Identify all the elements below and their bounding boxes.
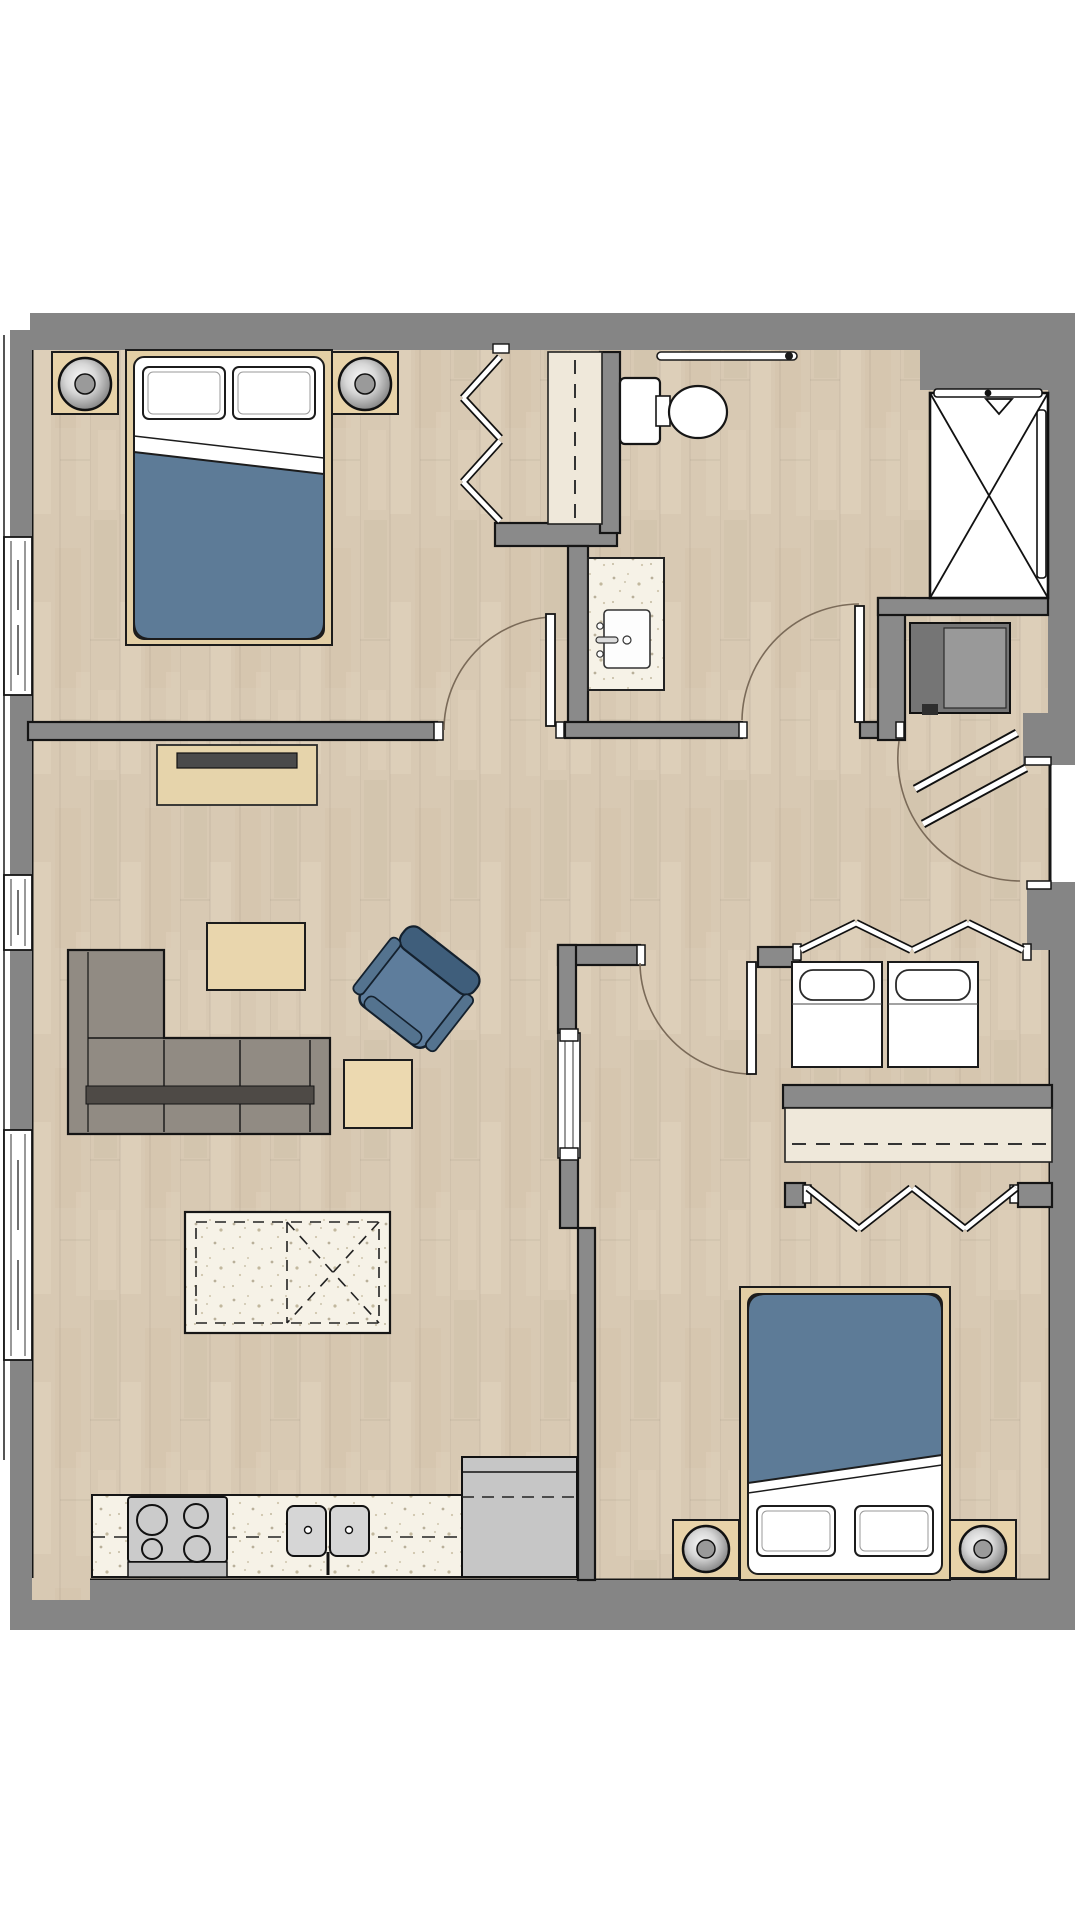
dryer-icon <box>888 962 978 1067</box>
faucet-handle <box>597 623 603 629</box>
wall-right-entry-block-bottom <box>1027 888 1052 950</box>
wall-bottom <box>90 1580 1075 1630</box>
wall-bedroom2-west-mid <box>560 1158 578 1228</box>
shower-glass-door <box>1037 410 1046 578</box>
wall-closet2-stub-left <box>785 1183 805 1207</box>
bed-duvet <box>748 1294 942 1483</box>
towel-bar-icon <box>657 352 797 360</box>
closet-shelf <box>785 1108 1052 1162</box>
table-lamp-center <box>75 374 95 394</box>
water-heater-panel <box>944 628 1006 708</box>
refrigerator-icon <box>462 1457 577 1577</box>
range-icon <box>128 1497 227 1577</box>
wall-right-lower <box>1050 882 1075 1630</box>
coffee-table <box>207 923 305 990</box>
floor-plan-canvas <box>0 0 1081 1920</box>
floor-patch-kitchen-left <box>32 1578 90 1602</box>
bed-duvet <box>134 452 324 639</box>
wall-left <box>10 330 32 1607</box>
wall-bottom-left-step <box>10 1600 92 1630</box>
wall-bedroom2-west-low <box>578 1228 595 1580</box>
kitchen-island <box>185 1212 390 1333</box>
wall-niche-west <box>878 598 905 740</box>
pocket-door-jamb <box>560 1148 578 1160</box>
wall-bath-south-west <box>565 722 742 738</box>
shower-rod-dot <box>985 390 992 397</box>
floor-plan <box>0 0 1081 1920</box>
water-heater-niche <box>910 623 1010 715</box>
table-lamp-center <box>697 1540 715 1558</box>
wall-top <box>30 313 1075 350</box>
table-lamp-center <box>974 1540 992 1558</box>
windows <box>4 537 32 1360</box>
pocket-door <box>558 1029 580 1160</box>
washer-icon <box>792 962 882 1067</box>
oven-drawer <box>128 1562 227 1577</box>
wall-vanity-back <box>568 546 588 724</box>
table-lamp-center <box>355 374 375 394</box>
wall-closet1-east <box>600 352 620 533</box>
faucet-icon <box>596 637 618 643</box>
tv-icon <box>177 753 297 768</box>
wall-right-upper <box>1048 313 1075 713</box>
shower <box>930 389 1048 598</box>
faucet-handle <box>597 651 603 657</box>
wall-laundry-closet-divider <box>783 1085 1052 1108</box>
vanity <box>588 558 664 690</box>
wall-closet1-south <box>495 523 617 546</box>
window-living-upper <box>4 875 32 950</box>
window-living-lower <box>4 1130 32 1360</box>
window-bedroom1 <box>4 537 32 695</box>
side-table <box>344 1060 412 1128</box>
door-jamb-cap <box>493 344 509 353</box>
wall-bedroom1-south <box>28 722 437 740</box>
sofa-front-edge <box>86 1086 314 1104</box>
water-heater-valve <box>922 704 938 715</box>
wall-shower-niche-divider <box>878 598 1048 615</box>
towel-bar-end <box>785 352 793 360</box>
wall-bedroom2-west-stub <box>558 945 576 1033</box>
wall-closet2-stub-right <box>1018 1183 1052 1207</box>
pocket-door-jamb <box>560 1029 578 1041</box>
